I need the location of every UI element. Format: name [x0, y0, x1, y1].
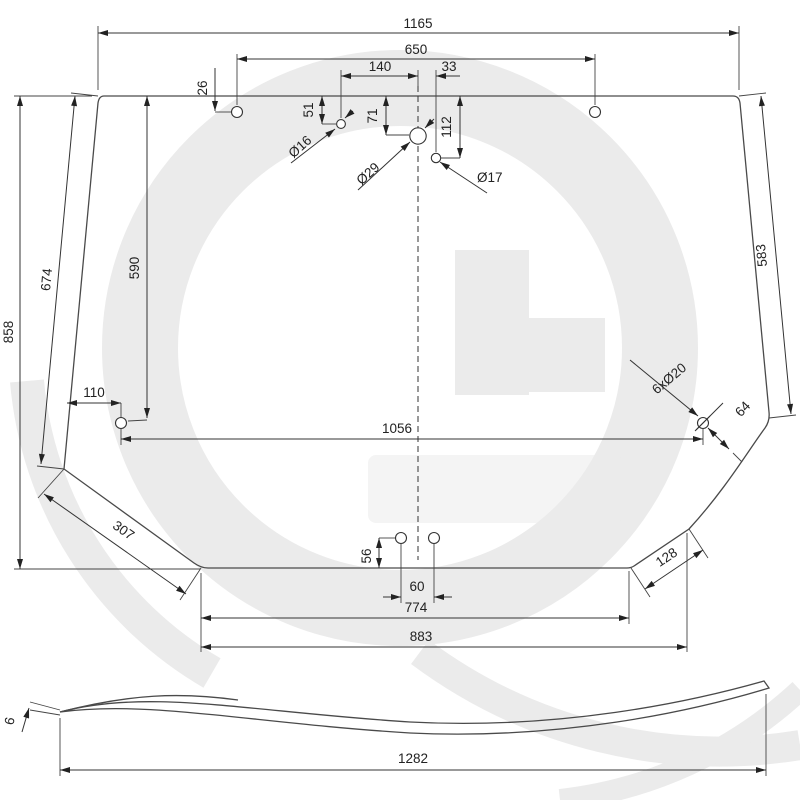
- dim-140-label: 140: [369, 59, 392, 74]
- dim-307-label: 307: [110, 518, 137, 543]
- hole-side-left: [116, 418, 127, 429]
- dim-858-label: 858: [1, 321, 16, 344]
- hole-top-right: [590, 107, 601, 118]
- hole-bottom-right: [429, 533, 440, 544]
- dim-56-label: 56: [359, 548, 374, 563]
- dim-lower-right-edge: 128: [631, 529, 708, 597]
- dim-128-label: 128: [653, 545, 680, 570]
- profile-glass-band: [60, 681, 769, 734]
- dim-overall-width-label: 1165: [403, 16, 432, 31]
- dim-1056-label: 1056: [382, 421, 412, 436]
- dim-33-label: 33: [441, 59, 456, 74]
- dim-51-label: 51: [301, 102, 316, 117]
- dim-top-left-hole-depth: 26: [195, 68, 231, 112]
- dim-674-label: 674: [38, 267, 55, 291]
- dim-profile-thickness: 6: [1, 702, 60, 732]
- dim-883-label: 883: [410, 629, 433, 644]
- callout-dia17-label: Ø17: [477, 170, 503, 185]
- watermark-g-crossbar: [455, 318, 605, 392]
- dim-71-label: 71: [365, 108, 380, 123]
- dim-26-label: 26: [195, 80, 210, 95]
- technical-drawing-page: 1165 650 140 33 26: [0, 0, 800, 800]
- dim-64-label: 64: [732, 398, 754, 420]
- dim-112-label: 112: [439, 116, 454, 138]
- callout-dia29-label: Ø29: [353, 160, 382, 188]
- dim-590-label: 590: [127, 257, 142, 280]
- dim-6-label: 6: [1, 716, 17, 726]
- dim-60-label: 60: [409, 579, 424, 594]
- dim-1282-label: 1282: [398, 751, 428, 766]
- hole-dia16: [337, 120, 346, 129]
- hole-top-left: [232, 107, 243, 118]
- hole-bottom-left: [396, 533, 407, 544]
- dim-774-label: 774: [405, 600, 428, 615]
- drawing-canvas: 1165 650 140 33 26: [0, 0, 800, 800]
- dim-top-hole-span-label: 650: [405, 42, 428, 57]
- hole-dia29: [410, 128, 426, 144]
- dim-left-edge: 674: [37, 93, 98, 469]
- watermark-block: [368, 455, 623, 523]
- hole-dia17: [431, 153, 440, 162]
- watermark-logo: [27, 88, 800, 800]
- dim-583-label: 583: [753, 244, 770, 268]
- dim-right-edge: 583: [739, 93, 796, 418]
- dim-110-label: 110: [83, 385, 105, 400]
